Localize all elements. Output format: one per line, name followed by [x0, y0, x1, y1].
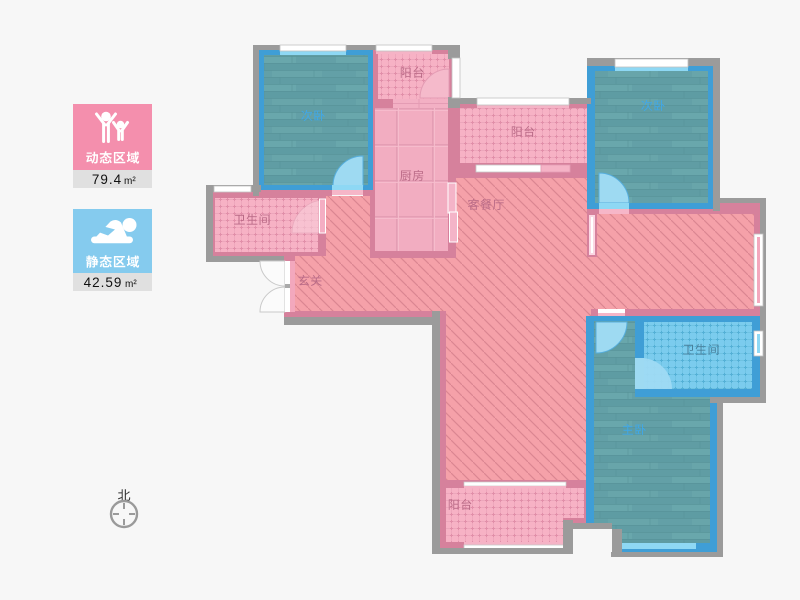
svg-text:79.4: 79.4: [92, 172, 122, 187]
svg-text:m²: m²: [125, 279, 137, 290]
svg-text:m²: m²: [124, 176, 136, 187]
svg-text:42.59: 42.59: [84, 275, 123, 290]
